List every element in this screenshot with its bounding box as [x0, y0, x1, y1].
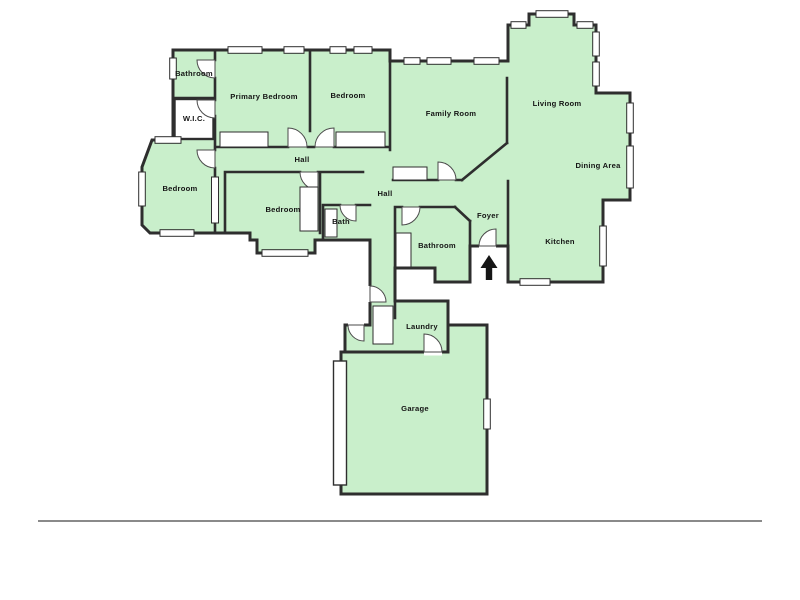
footer-divider	[38, 520, 762, 522]
closet-primary	[220, 132, 268, 147]
room-label-bath: Bath	[332, 217, 350, 226]
room-label-bedroom-top: Bedroom	[330, 91, 365, 100]
room-label-living-room: Living Room	[533, 99, 582, 108]
vanity-bathroom-middle	[396, 233, 411, 267]
room-label-bedroom-middle: Bedroom	[265, 205, 300, 214]
floorplan-page: BathroomPrimary BedroomBedroomW.I.C.Hall…	[0, 0, 800, 600]
room-label-bathroom-middle: Bathroom	[418, 241, 456, 250]
room-label-wic: W.I.C.	[183, 114, 205, 123]
north-arrow-icon	[481, 255, 498, 280]
room-label-family-room: Family Room	[426, 109, 476, 118]
room-label-foyer: Foyer	[477, 211, 499, 220]
closet-bedroom-left	[212, 177, 219, 223]
footer: ARIZTO 111 Taits Road, Newland Disclaime…	[0, 520, 800, 600]
room-label-hall-lower: Hall	[378, 189, 393, 198]
closet-family	[393, 167, 427, 180]
room-label-kitchen: Kitchen	[545, 237, 575, 246]
room-label-bathroom-top: Bathroom	[175, 69, 213, 78]
room-label-primary-bedroom: Primary Bedroom	[230, 92, 297, 101]
room-label-laundry: Laundry	[406, 322, 438, 331]
room-label-garage: Garage	[401, 404, 429, 413]
room-label-bedroom-left: Bedroom	[162, 184, 197, 193]
floorplan-svg: BathroomPrimary BedroomBedroomW.I.C.Hall…	[0, 0, 800, 520]
closet-bedroom-top	[336, 132, 385, 147]
room-label-dining-area: Dining Area	[575, 161, 621, 170]
closet-bedroom-middle	[300, 187, 318, 231]
fixture-laundry	[373, 306, 393, 344]
garage-door	[334, 361, 347, 485]
room-label-hall-upper: Hall	[295, 155, 310, 164]
